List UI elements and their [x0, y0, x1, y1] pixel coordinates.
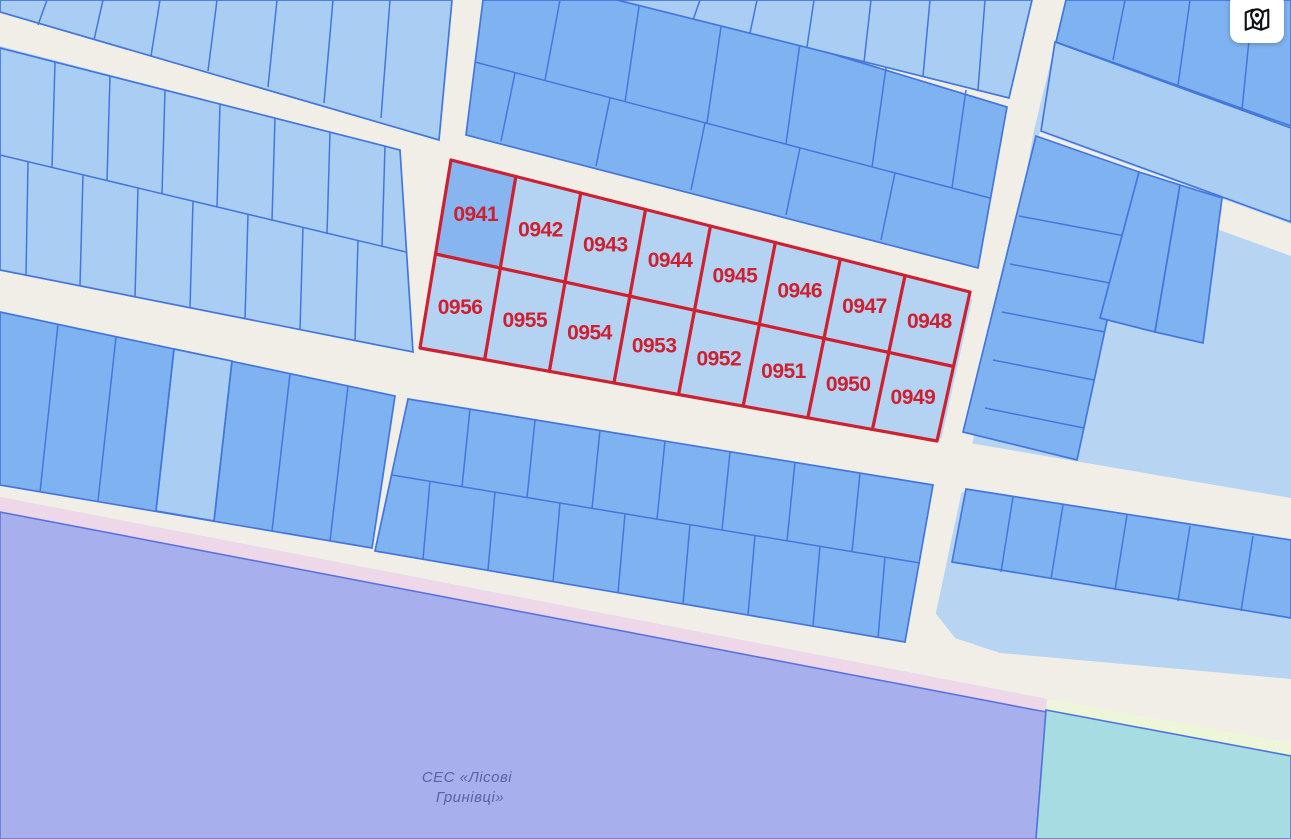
parcel-label-0942: 0942 — [518, 218, 563, 241]
map-canvas[interactable]: 0941094209430944094509460947094809490950… — [0, 0, 1291, 839]
zone-label-line2: Гринівці» — [436, 789, 504, 806]
parcel-label-0941: 0941 — [453, 203, 499, 226]
parcel-label-0951: 0951 — [761, 360, 807, 383]
map-viewport: 0941094209430944094509460947094809490950… — [0, 0, 1291, 839]
map-pin-icon — [1242, 6, 1272, 36]
parcel-label-0952: 0952 — [696, 347, 741, 370]
parcel-label-0947: 0947 — [842, 295, 887, 318]
parcel-label-0954: 0954 — [567, 322, 613, 345]
parcel-label-0948: 0948 — [907, 310, 953, 333]
parcel-label-0949: 0949 — [891, 386, 936, 409]
map-overview-button[interactable] — [1230, 0, 1284, 43]
parcel-label-0953: 0953 — [632, 335, 677, 358]
parcel-label-0945: 0945 — [713, 264, 759, 287]
parcel-label-0950: 0950 — [826, 373, 871, 396]
parcel-label-0943: 0943 — [583, 234, 628, 257]
parcel-label-0956: 0956 — [438, 296, 483, 319]
zone-label-line1: СЕС «Лісові — [422, 769, 512, 786]
parcel-label-0944: 0944 — [648, 249, 694, 272]
parcel-label-0955: 0955 — [502, 309, 548, 332]
parcel-label-0946: 0946 — [777, 280, 822, 303]
